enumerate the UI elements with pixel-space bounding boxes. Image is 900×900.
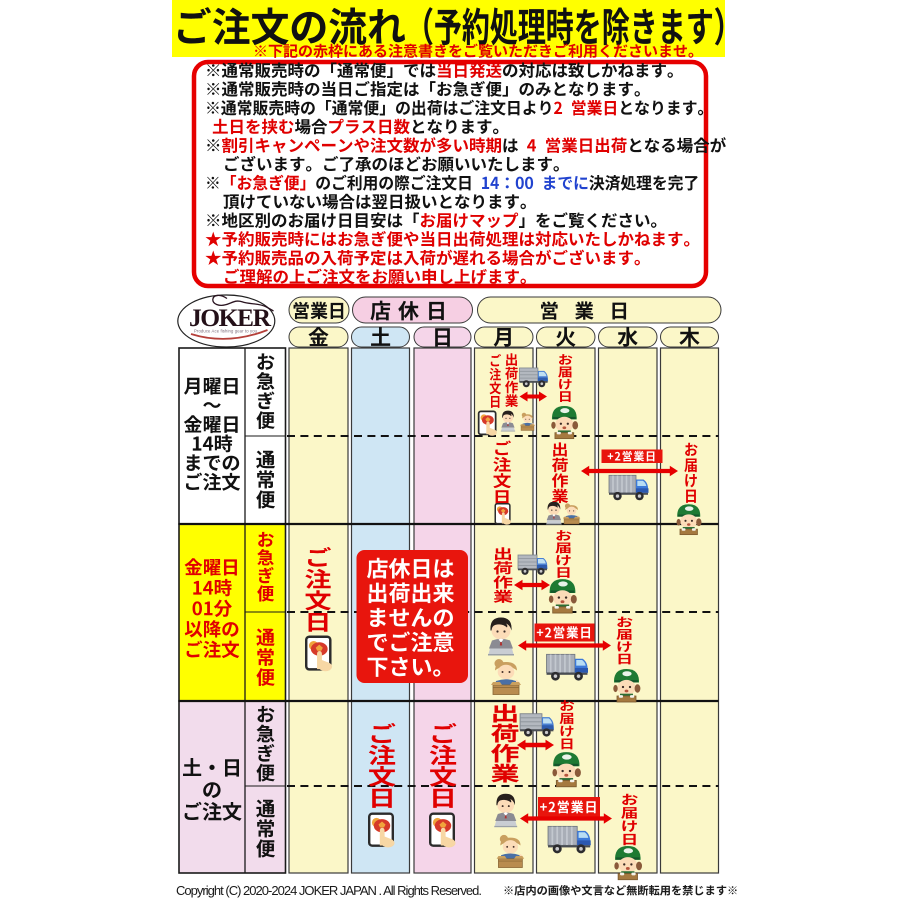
svg-text:Produce Ace fishing gear to y: Produce Ace fishing gear to you — [194, 329, 258, 334]
svg-text:Copyright (C) 2020-2024 JOKER: Copyright (C) 2020-2024 JOKER JAPAN . Al… — [176, 883, 482, 898]
